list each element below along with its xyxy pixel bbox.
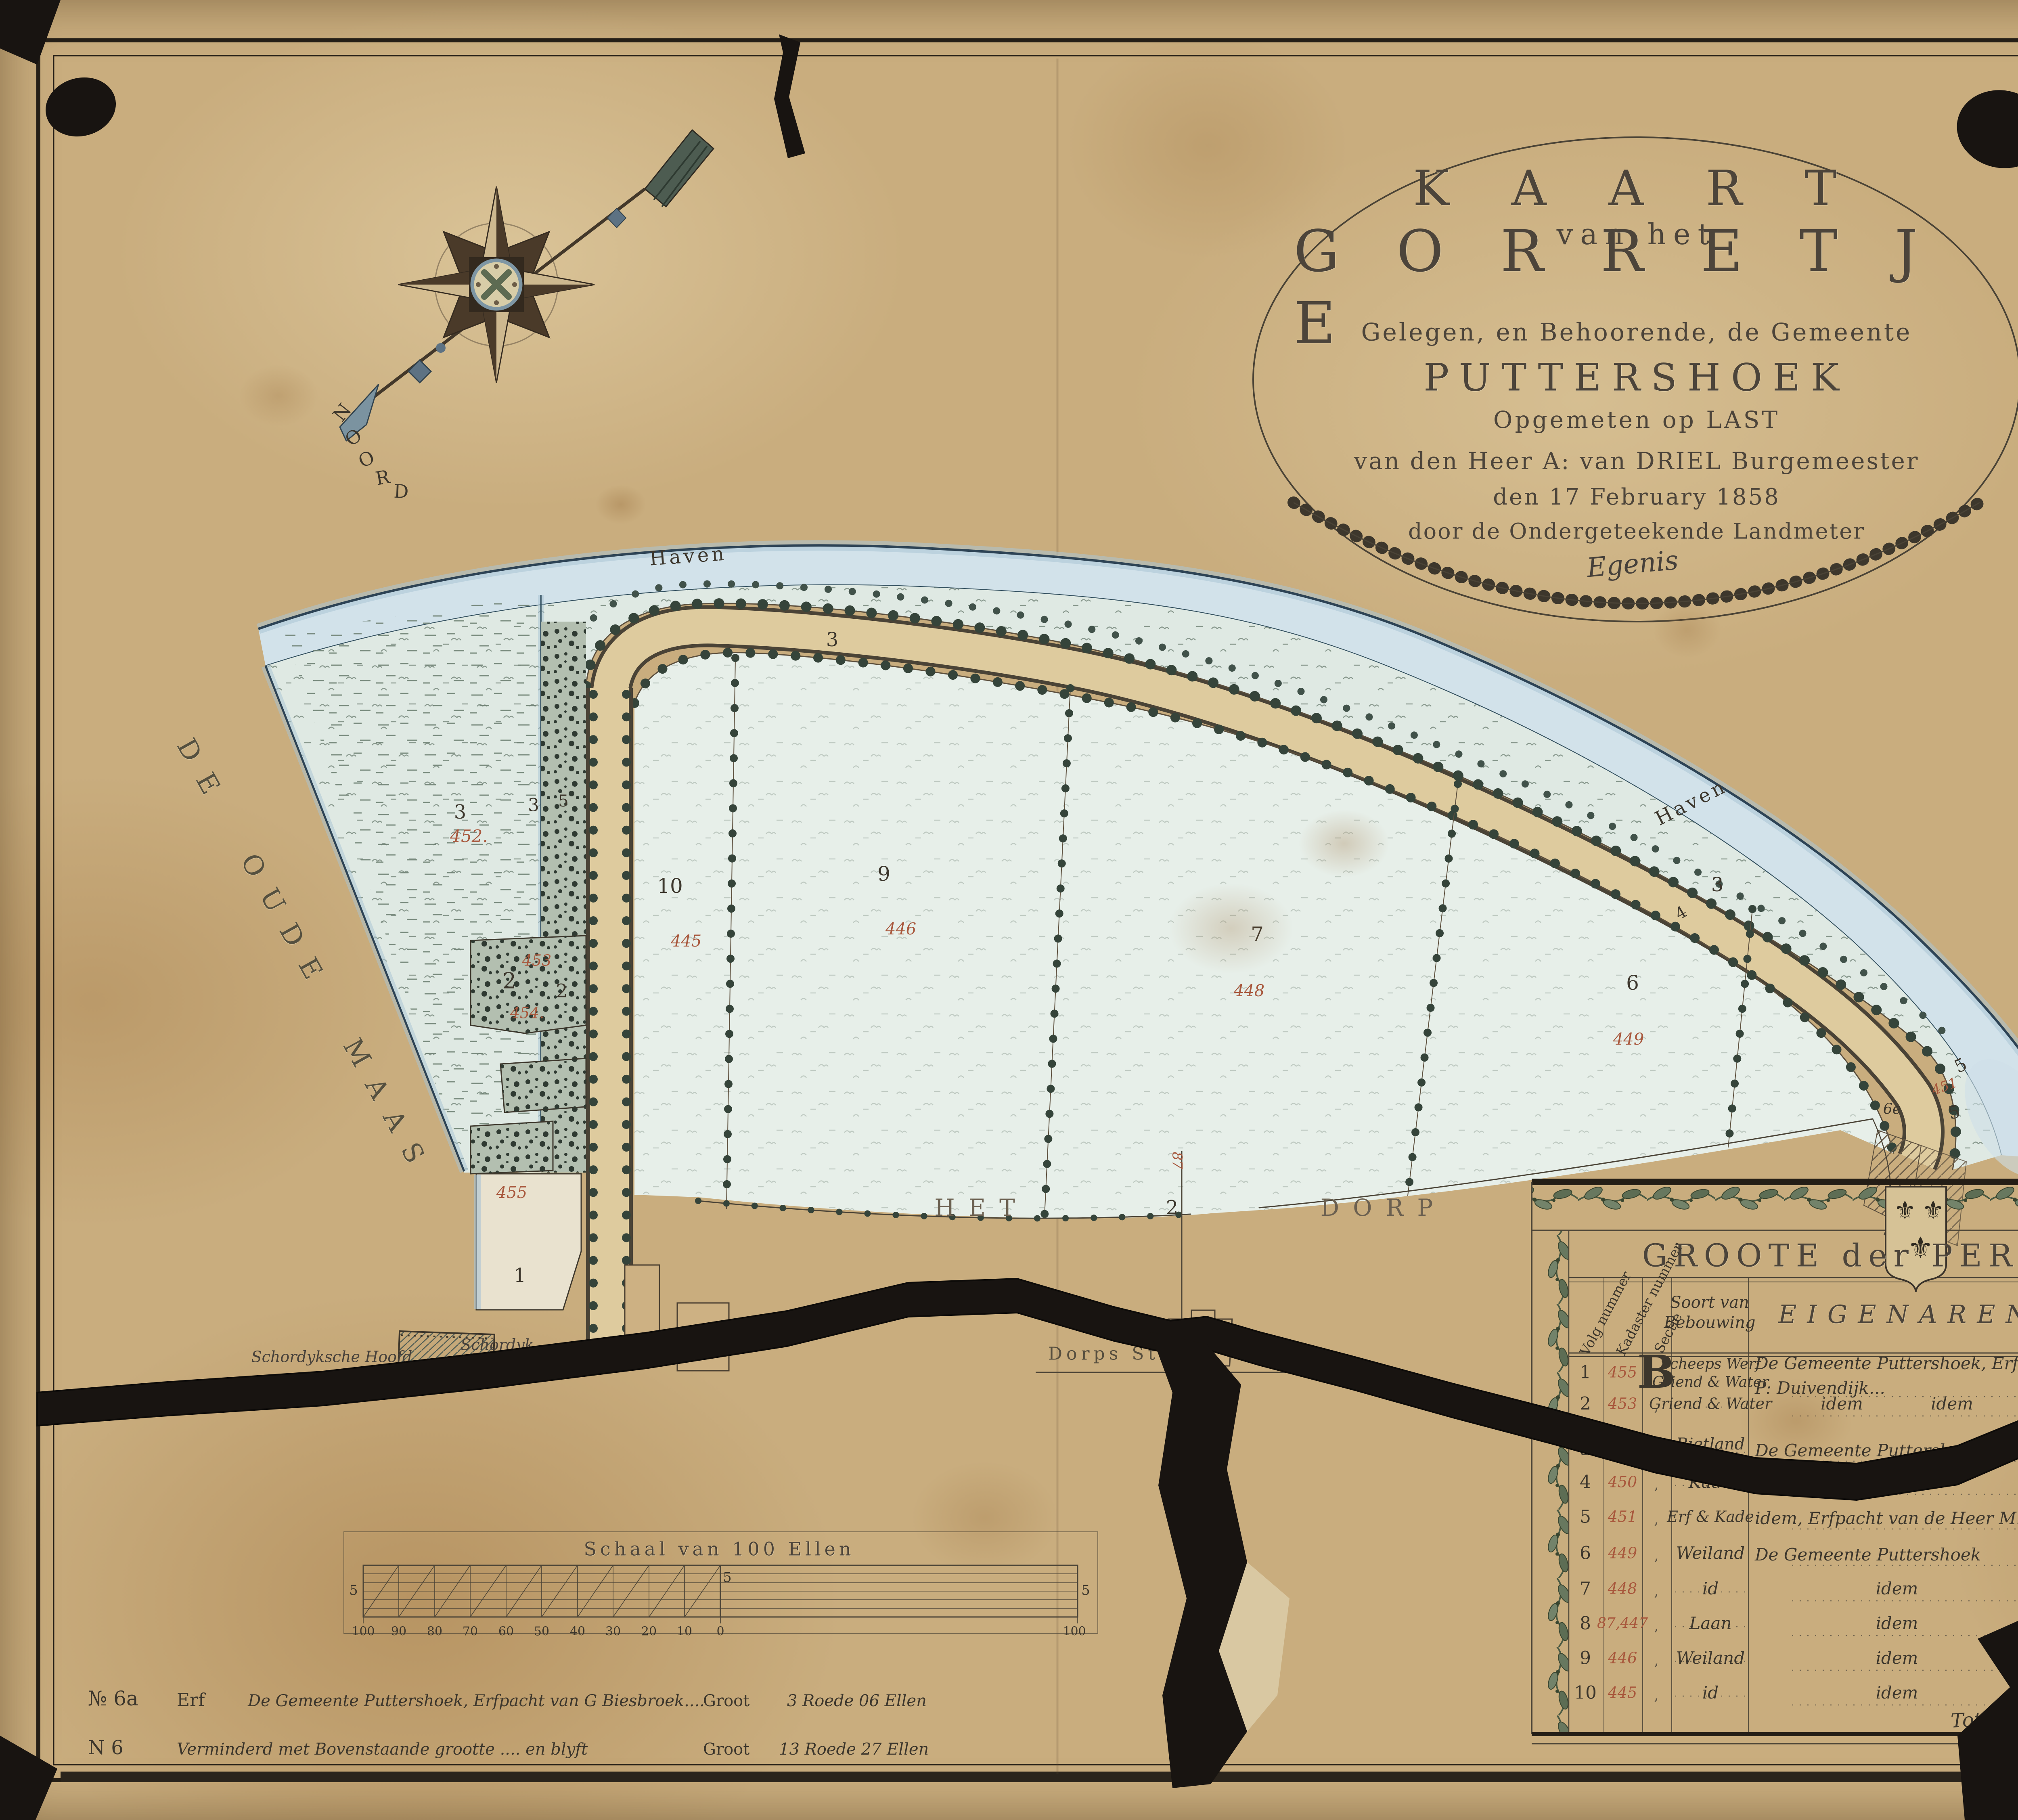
tear-bottom-right (1957, 1606, 2018, 1820)
map-sheet: K A A R T van het G O R R E T J E Gelege… (0, 0, 2018, 1820)
tear-main (37, 1279, 2018, 1500)
tear-center-blob (1150, 1332, 1247, 1788)
ink-blot-top-right-a (1949, 82, 2018, 176)
tear-corner-bottom-left (0, 1736, 57, 1820)
ink-blot-top-left (39, 70, 122, 145)
tear-top-center (774, 34, 805, 158)
tear-corner-top-left (0, 0, 61, 65)
paper-tears (0, 0, 2018, 1820)
